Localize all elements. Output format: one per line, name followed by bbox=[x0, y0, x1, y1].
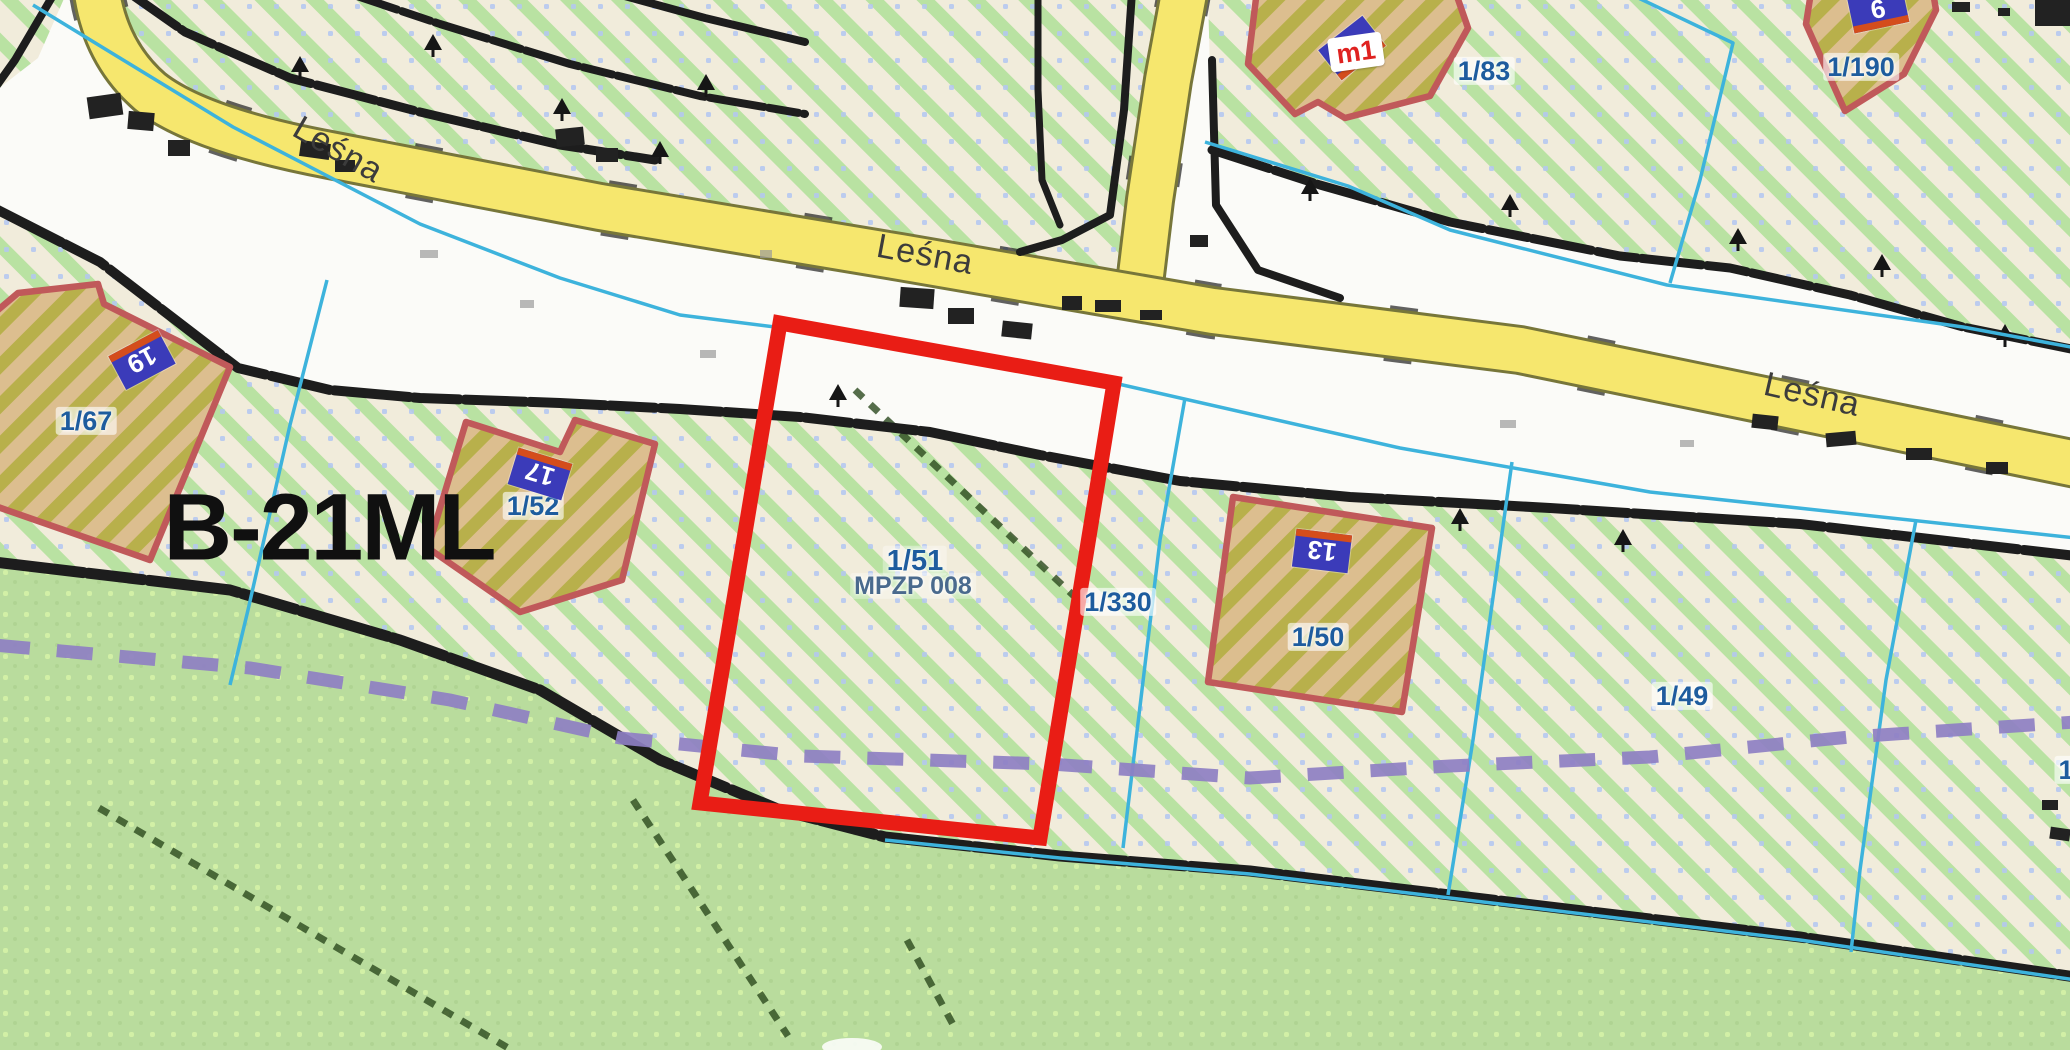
building-13-outline bbox=[1208, 497, 1432, 712]
parcel-label-1-83[interactable]: 1/83 bbox=[1454, 57, 1515, 85]
parcel-label-1-190[interactable]: 1/190 bbox=[1823, 53, 1899, 81]
parcel-label-1-67[interactable]: 1/67 bbox=[56, 407, 117, 435]
selected-parcel-plan-ref[interactable]: MPZP 008 bbox=[850, 573, 976, 599]
plate-number: m1 bbox=[1335, 34, 1378, 70]
parcel-label-1-50[interactable]: 1/50 bbox=[1288, 623, 1349, 651]
parcel-label-1-330[interactable]: 1/330 bbox=[1080, 588, 1156, 616]
zone-label: B-21ML bbox=[163, 474, 494, 583]
map-canvas[interactable]: Leśna Leśna Leśna B-21ML 1/67 1/52 1/330… bbox=[0, 0, 2070, 1050]
parcel-label-partial[interactable]: 1 bbox=[2054, 756, 2070, 784]
parcel-label-1-49[interactable]: 1/49 bbox=[1652, 682, 1713, 710]
address-plate-13: 13 bbox=[1292, 529, 1352, 574]
